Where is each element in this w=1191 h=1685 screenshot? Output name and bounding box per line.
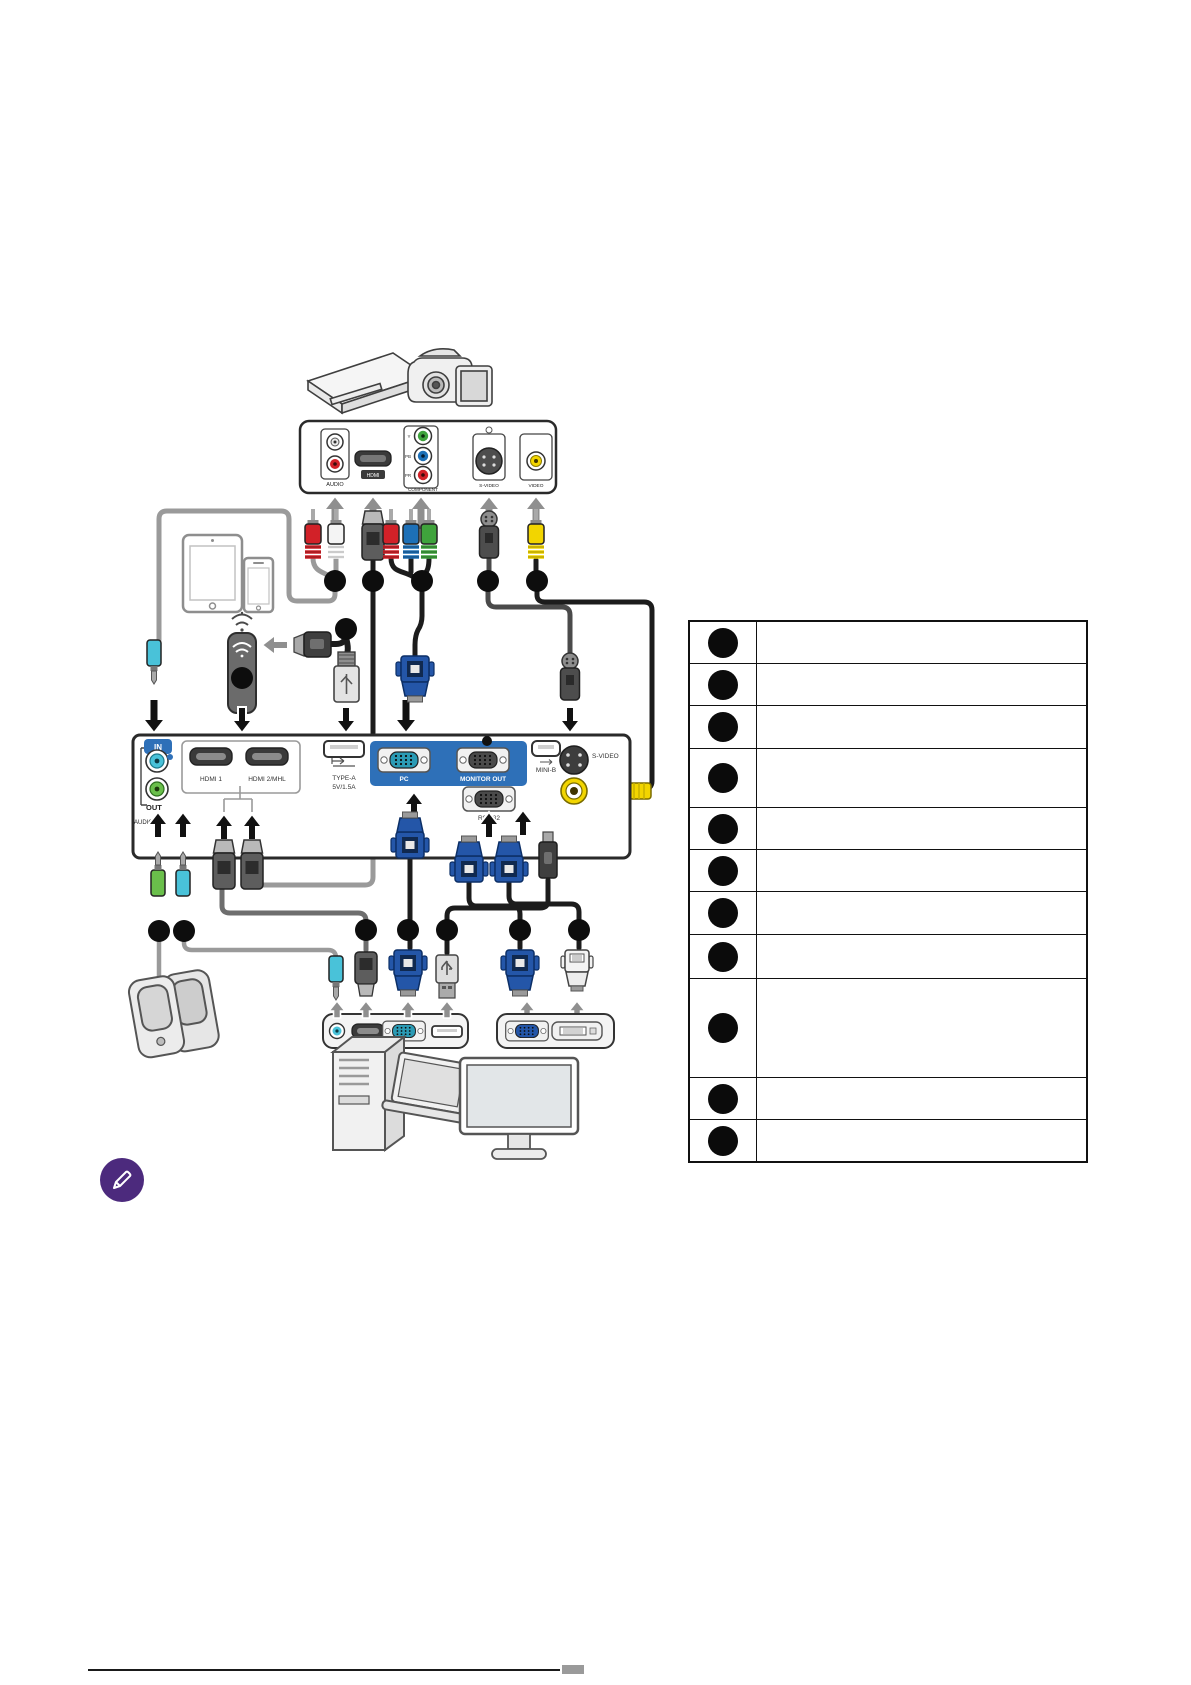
legend-label (757, 622, 1086, 663)
video-plug-yellow (528, 509, 544, 557)
strip-audio-plug (329, 956, 343, 1000)
legend-label (757, 1120, 1086, 1161)
rs232-port (463, 787, 515, 811)
projector-panel: IN OUT AUDIO HDMI 1 HDMI 2/MHL TYPE-A 5V… (133, 735, 630, 858)
legend-number-cell (690, 1120, 757, 1161)
legend-number-cell (690, 706, 757, 748)
page-bottom-mark (562, 1665, 584, 1674)
component-pin-pb: PB (405, 454, 411, 459)
monitor-out-label: MONITOR OUT (460, 776, 506, 783)
monitor-out-port (457, 748, 509, 772)
av-hdmi-label: HDMI (367, 473, 380, 479)
hdmi1-label: HDMI 1 (200, 776, 222, 783)
arrow-down-svideo (560, 707, 580, 733)
usb-type-a-power: 5V/1.5A (332, 784, 356, 791)
audio-in-route-dot (167, 754, 173, 760)
tablet (183, 535, 242, 612)
computer (333, 1037, 479, 1150)
legend-row (690, 663, 1086, 705)
svideo-plug-bottom (561, 653, 580, 700)
av-device-panel: AUDIO HDMI Y PB PR COMPONENT S-VIDEO VID… (300, 421, 556, 493)
legend-number-badge (708, 1013, 738, 1043)
arrow-down-audio-in (143, 699, 165, 733)
legend-number-badge (708, 814, 738, 844)
legend-label (757, 749, 1086, 807)
usb-type-a-label: TYPE-A (332, 775, 356, 782)
legend-number-cell (690, 979, 757, 1077)
legend-number-badge (708, 628, 738, 658)
node-dongle (231, 667, 253, 689)
legend-number-cell (690, 808, 757, 849)
monitor-vga-plug (501, 950, 539, 996)
monitor-vga-cable (469, 882, 520, 948)
component-pin-pr: PR (405, 473, 412, 478)
monitor (460, 1058, 578, 1159)
pc-monitor-section: PC MONITOR OUT (370, 741, 527, 786)
legend-number-badge (708, 712, 738, 742)
rca-plug-red (305, 509, 321, 557)
legend-row (690, 748, 1086, 807)
legend-number-badge (708, 1084, 738, 1114)
legend-number-badge (708, 670, 738, 700)
legend-number-badge (708, 856, 738, 886)
node-svideo (477, 570, 499, 592)
usb-minib-cable (447, 880, 548, 953)
node-monitor-vga (509, 919, 531, 941)
legend-label (757, 808, 1086, 849)
computer-hdmi-cable (222, 880, 366, 950)
pencil-icon (110, 1168, 134, 1192)
node-video (526, 570, 548, 592)
component-pin-y: Y (407, 434, 410, 439)
wireless-dongle (228, 633, 256, 713)
arrow-down-usb-a (336, 707, 356, 733)
legend-number-badge (708, 898, 738, 928)
av-audio-ports: AUDIO (321, 429, 349, 488)
arrow-left-dongle (262, 635, 288, 655)
cable-nodes-bottom (148, 919, 590, 942)
manual-page: AUDIO HDMI Y PB PR COMPONENT S-VIDEO VID… (0, 0, 1191, 1685)
node-usb-pc (436, 919, 458, 941)
projector-video-port (561, 778, 587, 804)
legend-number-cell (690, 664, 757, 705)
legend-number-cell (690, 935, 757, 978)
monitor-strip-vga-port (506, 1021, 549, 1041)
monitor-strip-dvi-port (552, 1022, 602, 1040)
node-monitor-dvi (568, 919, 590, 941)
hdmi2-plug (241, 840, 263, 889)
strip-vga-plug (389, 950, 427, 996)
node-audio-pc (173, 920, 195, 942)
strip-usb-plug (436, 955, 458, 998)
legend-row (690, 1119, 1086, 1161)
legend-number-cell (690, 622, 757, 663)
audio-in-jack-plug (147, 640, 161, 684)
smartphone (244, 558, 273, 612)
node-component (411, 570, 433, 592)
av-component-ports: Y PB PR COMPONENT (404, 426, 438, 492)
wifi-icon (232, 612, 252, 632)
micro-usb-plug (294, 632, 331, 657)
legend-number-badge (708, 942, 738, 972)
pc-port (378, 748, 430, 772)
monitor-out-dot (482, 736, 492, 746)
page-bottom-divider (88, 1669, 560, 1671)
speakers (127, 968, 220, 1059)
node-audio (324, 570, 346, 592)
strip-hdmi-plug (355, 952, 377, 996)
legend-number-cell (690, 749, 757, 807)
node-hdmi (362, 570, 384, 592)
computer-strip-plugs (329, 950, 458, 1000)
legend-table (688, 620, 1088, 1163)
component-plug-pr (383, 509, 399, 557)
legend-row (690, 807, 1086, 849)
svideo-cable (488, 558, 570, 652)
legend-label (757, 664, 1086, 705)
legend-row (690, 849, 1086, 891)
pc-label: PC (399, 776, 408, 783)
av-audio-label: AUDIO (326, 482, 344, 488)
legend-label (757, 1078, 1086, 1119)
usb-a-plug (334, 652, 359, 702)
note-icon (100, 1158, 144, 1202)
arrow-down-pc (395, 699, 417, 733)
legend-number-badge (708, 763, 738, 793)
legend-row (690, 705, 1086, 748)
legend-row (690, 622, 1086, 663)
av-video-label: VIDEO (529, 483, 544, 489)
legend-row (690, 891, 1086, 934)
av-svideo-port: S-VIDEO (473, 427, 505, 489)
monitor-adapter-strip (497, 1014, 614, 1048)
node-vga-pc (397, 919, 419, 941)
legend-number-cell (690, 850, 757, 891)
legend-label (757, 935, 1086, 978)
legend-label (757, 979, 1086, 1077)
legend-label (757, 892, 1086, 934)
legend-row (690, 934, 1086, 978)
component-vga-connector (396, 656, 434, 702)
legend-row (690, 978, 1086, 1077)
monitor-dvi-plug (561, 950, 593, 991)
camcorder (408, 349, 492, 406)
hdmi-plug (362, 511, 384, 560)
node-hdmi-pc (355, 919, 377, 941)
legend-label (757, 706, 1086, 748)
av-component-label: COMPONENT (408, 487, 438, 492)
legend-number-badge (708, 1126, 738, 1156)
legend-number-cell (690, 1078, 757, 1119)
computer-audio-cable (184, 942, 336, 960)
projector-svideo-label: S-VIDEO (592, 753, 619, 760)
hdmi2-label: HDMI 2/MHL (248, 776, 286, 783)
node-speaker (148, 920, 170, 942)
av-svideo-label: S-VIDEO (479, 483, 499, 489)
legend-number-cell (690, 892, 757, 934)
node-usb-dongle (335, 618, 357, 640)
audio-out-label: OUT (146, 803, 162, 812)
legend-row (690, 1077, 1086, 1119)
mini-b-label: MINI-B (536, 767, 556, 774)
legend-label (757, 850, 1086, 891)
hdmi1-plug (213, 840, 235, 889)
svideo-plug-top (480, 511, 499, 558)
